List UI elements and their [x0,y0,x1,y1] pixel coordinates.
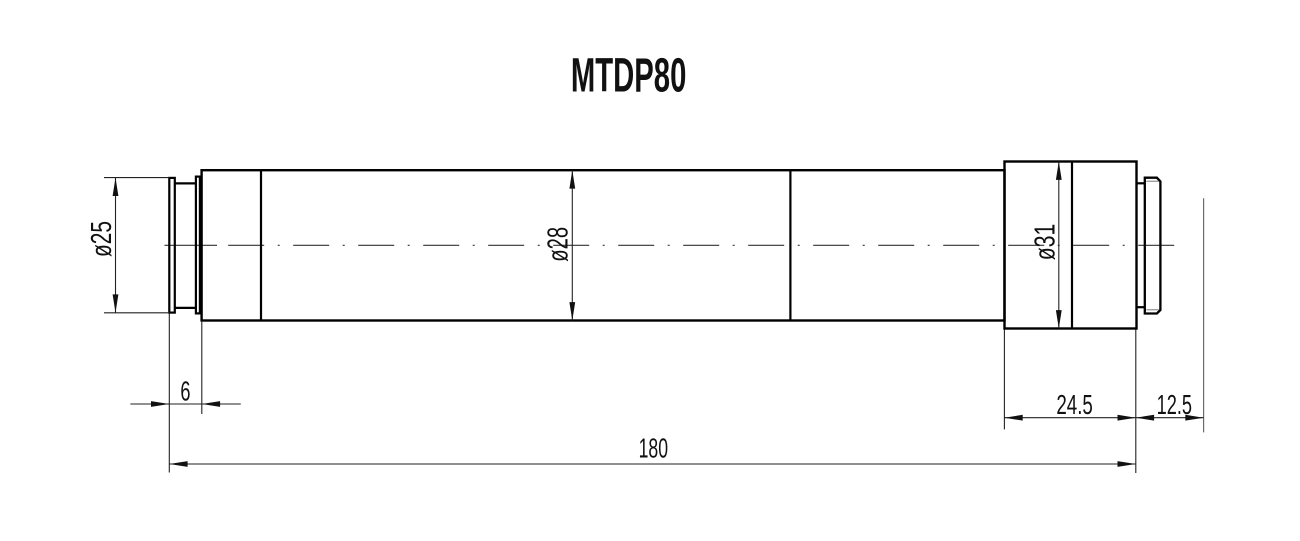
svg-text:12.5: 12.5 [1157,390,1192,421]
svg-text:6: 6 [180,377,190,408]
svg-text:180: 180 [639,432,668,463]
svg-text:ø25: ø25 [86,221,118,257]
svg-text:ø28: ø28 [542,227,574,262]
svg-text:24.5: 24.5 [1056,389,1093,421]
svg-text:ø31: ø31 [1029,224,1061,260]
svg-text:MTDP80: MTDP80 [571,49,686,102]
